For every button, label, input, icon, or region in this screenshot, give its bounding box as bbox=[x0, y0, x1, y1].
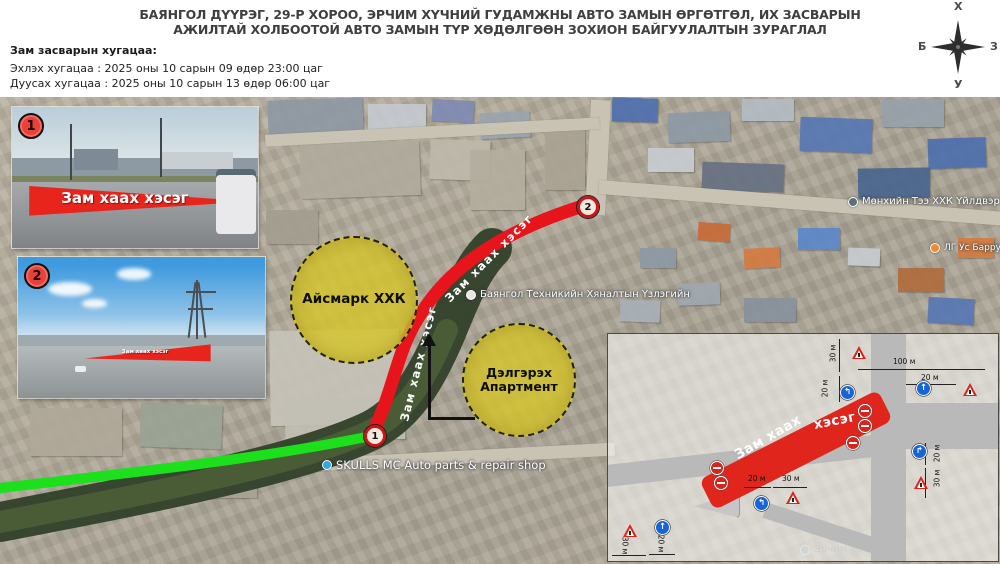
inset-diagram: Зам хааххэсэг bbox=[607, 333, 999, 562]
compass-west-label: Б bbox=[918, 40, 926, 53]
compass-south-label: У bbox=[954, 78, 962, 91]
title-line-2: АЖИЛТАЙ ХОЛБООТОЙ АВТО ЗАМЫН ТҮР ХӨДӨЛГӨ… bbox=[0, 22, 1000, 37]
building-block bbox=[744, 247, 781, 269]
photo1-number-badge: 1 bbox=[18, 113, 44, 139]
building-block bbox=[285, 397, 406, 441]
place-dot-icon bbox=[848, 197, 858, 207]
place-label-text: ЛГ Ус Барру Ба bbox=[944, 243, 1000, 253]
building-block bbox=[612, 97, 659, 123]
building-block bbox=[898, 268, 944, 292]
building-block bbox=[648, 148, 694, 172]
building-block bbox=[799, 117, 872, 153]
map-place-label: Баянгол Техникийн Хяналтын Үзлэгийн bbox=[466, 289, 690, 300]
building-block bbox=[742, 99, 794, 121]
building-block bbox=[205, 468, 257, 498]
photo1-truck bbox=[216, 169, 255, 234]
photo1-caption: Зам хаах хэсэг bbox=[61, 189, 188, 207]
place-dot-icon bbox=[466, 290, 476, 300]
photo-inset-1: Зам хаах хэсэг 1 bbox=[12, 107, 258, 248]
map-marker-1: 1 bbox=[364, 425, 386, 447]
compass-east-label: З bbox=[990, 40, 998, 53]
page-title: БАЯНГОЛ ДҮҮРЭГ, 29-Р ХОРОО, ЭРЧИМ ХҮЧНИЙ… bbox=[0, 7, 1000, 37]
place-label-text: Мөнхийн Тээ ХХК Үйлдвэр bbox=[862, 196, 1000, 207]
building-block bbox=[744, 298, 796, 322]
inset-horizontal-road bbox=[906, 403, 998, 449]
building-block bbox=[640, 248, 676, 268]
building-block bbox=[30, 408, 122, 456]
building-block bbox=[858, 167, 931, 198]
building-block bbox=[299, 140, 421, 199]
schedule-start: Эхлэх хугацаа : 2025 оны 10 сарын 09 өдө… bbox=[10, 61, 330, 76]
photo-inset-2: Зам хаах хэсэг 2 bbox=[18, 257, 265, 398]
photo2-number-badge: 2 bbox=[24, 263, 50, 289]
place-dot-icon bbox=[930, 243, 940, 253]
zone-aismark-label: Айсмарк ХХК bbox=[302, 292, 405, 308]
map-place-label: Мөнхийн Тээ ХХК Үйлдвэр bbox=[848, 196, 1000, 207]
title-line-1: БАЯНГОЛ ДҮҮРЭГ, 29-Р ХОРОО, ЭРЧИМ ХҮЧНИЙ… bbox=[0, 7, 1000, 22]
map-place-label: ЛГ Ус Барру Ба bbox=[930, 243, 1000, 253]
building-block bbox=[697, 222, 730, 242]
traffic-plan-page: БАЯНГОЛ ДҮҮРЭГ, 29-Р ХОРОО, ЭРЧИМ ХҮЧНИЙ… bbox=[0, 0, 1000, 564]
building-block bbox=[139, 403, 222, 450]
inset-vertical-road bbox=[871, 334, 906, 561]
schedule-heading: Зам засварын хугацаа: bbox=[10, 44, 330, 57]
building-block bbox=[667, 111, 730, 143]
schedule-end: Дуусах хугацаа : 2025 оны 10 сарын 13 өд… bbox=[10, 76, 330, 91]
repair-schedule: Зам засварын хугацаа: Эхлэх хугацаа : 20… bbox=[10, 44, 330, 91]
inset-branch-road bbox=[762, 502, 877, 553]
building-block bbox=[927, 297, 974, 325]
building-block bbox=[702, 162, 785, 193]
connector-line-horizontal bbox=[428, 417, 475, 420]
compass-north-label: Х bbox=[954, 0, 962, 13]
arrow-up-icon bbox=[422, 333, 436, 346]
building-block bbox=[266, 210, 318, 244]
connector-line-vertical bbox=[428, 345, 431, 419]
building-block bbox=[798, 228, 840, 250]
building-block bbox=[882, 99, 944, 127]
building-block bbox=[470, 150, 525, 210]
photo2-car bbox=[75, 366, 86, 372]
zone-aismark: Айсмарк ХХК bbox=[290, 236, 418, 364]
place-dot-icon bbox=[322, 460, 332, 470]
zone-delgerekh: Дэлгэрэх Апартмент bbox=[462, 323, 576, 437]
building-block bbox=[431, 99, 474, 123]
building-block bbox=[848, 247, 881, 266]
map-marker-2: 2 bbox=[577, 196, 599, 218]
compass-rose: Х У Б З bbox=[916, 2, 1000, 92]
building-block bbox=[620, 299, 661, 322]
place-label-text: SKULLS MC Auto parts & repair shop bbox=[336, 458, 546, 472]
place-label-text: Баянгол Техникийн Хяналтын Үзлэгийн bbox=[480, 289, 690, 300]
building-block bbox=[927, 137, 986, 169]
zone-delgerekh-label: Дэлгэрэх Апартмент bbox=[480, 366, 558, 395]
photo2-buildings bbox=[18, 335, 265, 346]
photo2-caption: Зам хаах хэсэг bbox=[122, 349, 169, 355]
map-place-label: SKULLS MC Auto parts & repair shop bbox=[322, 458, 546, 472]
